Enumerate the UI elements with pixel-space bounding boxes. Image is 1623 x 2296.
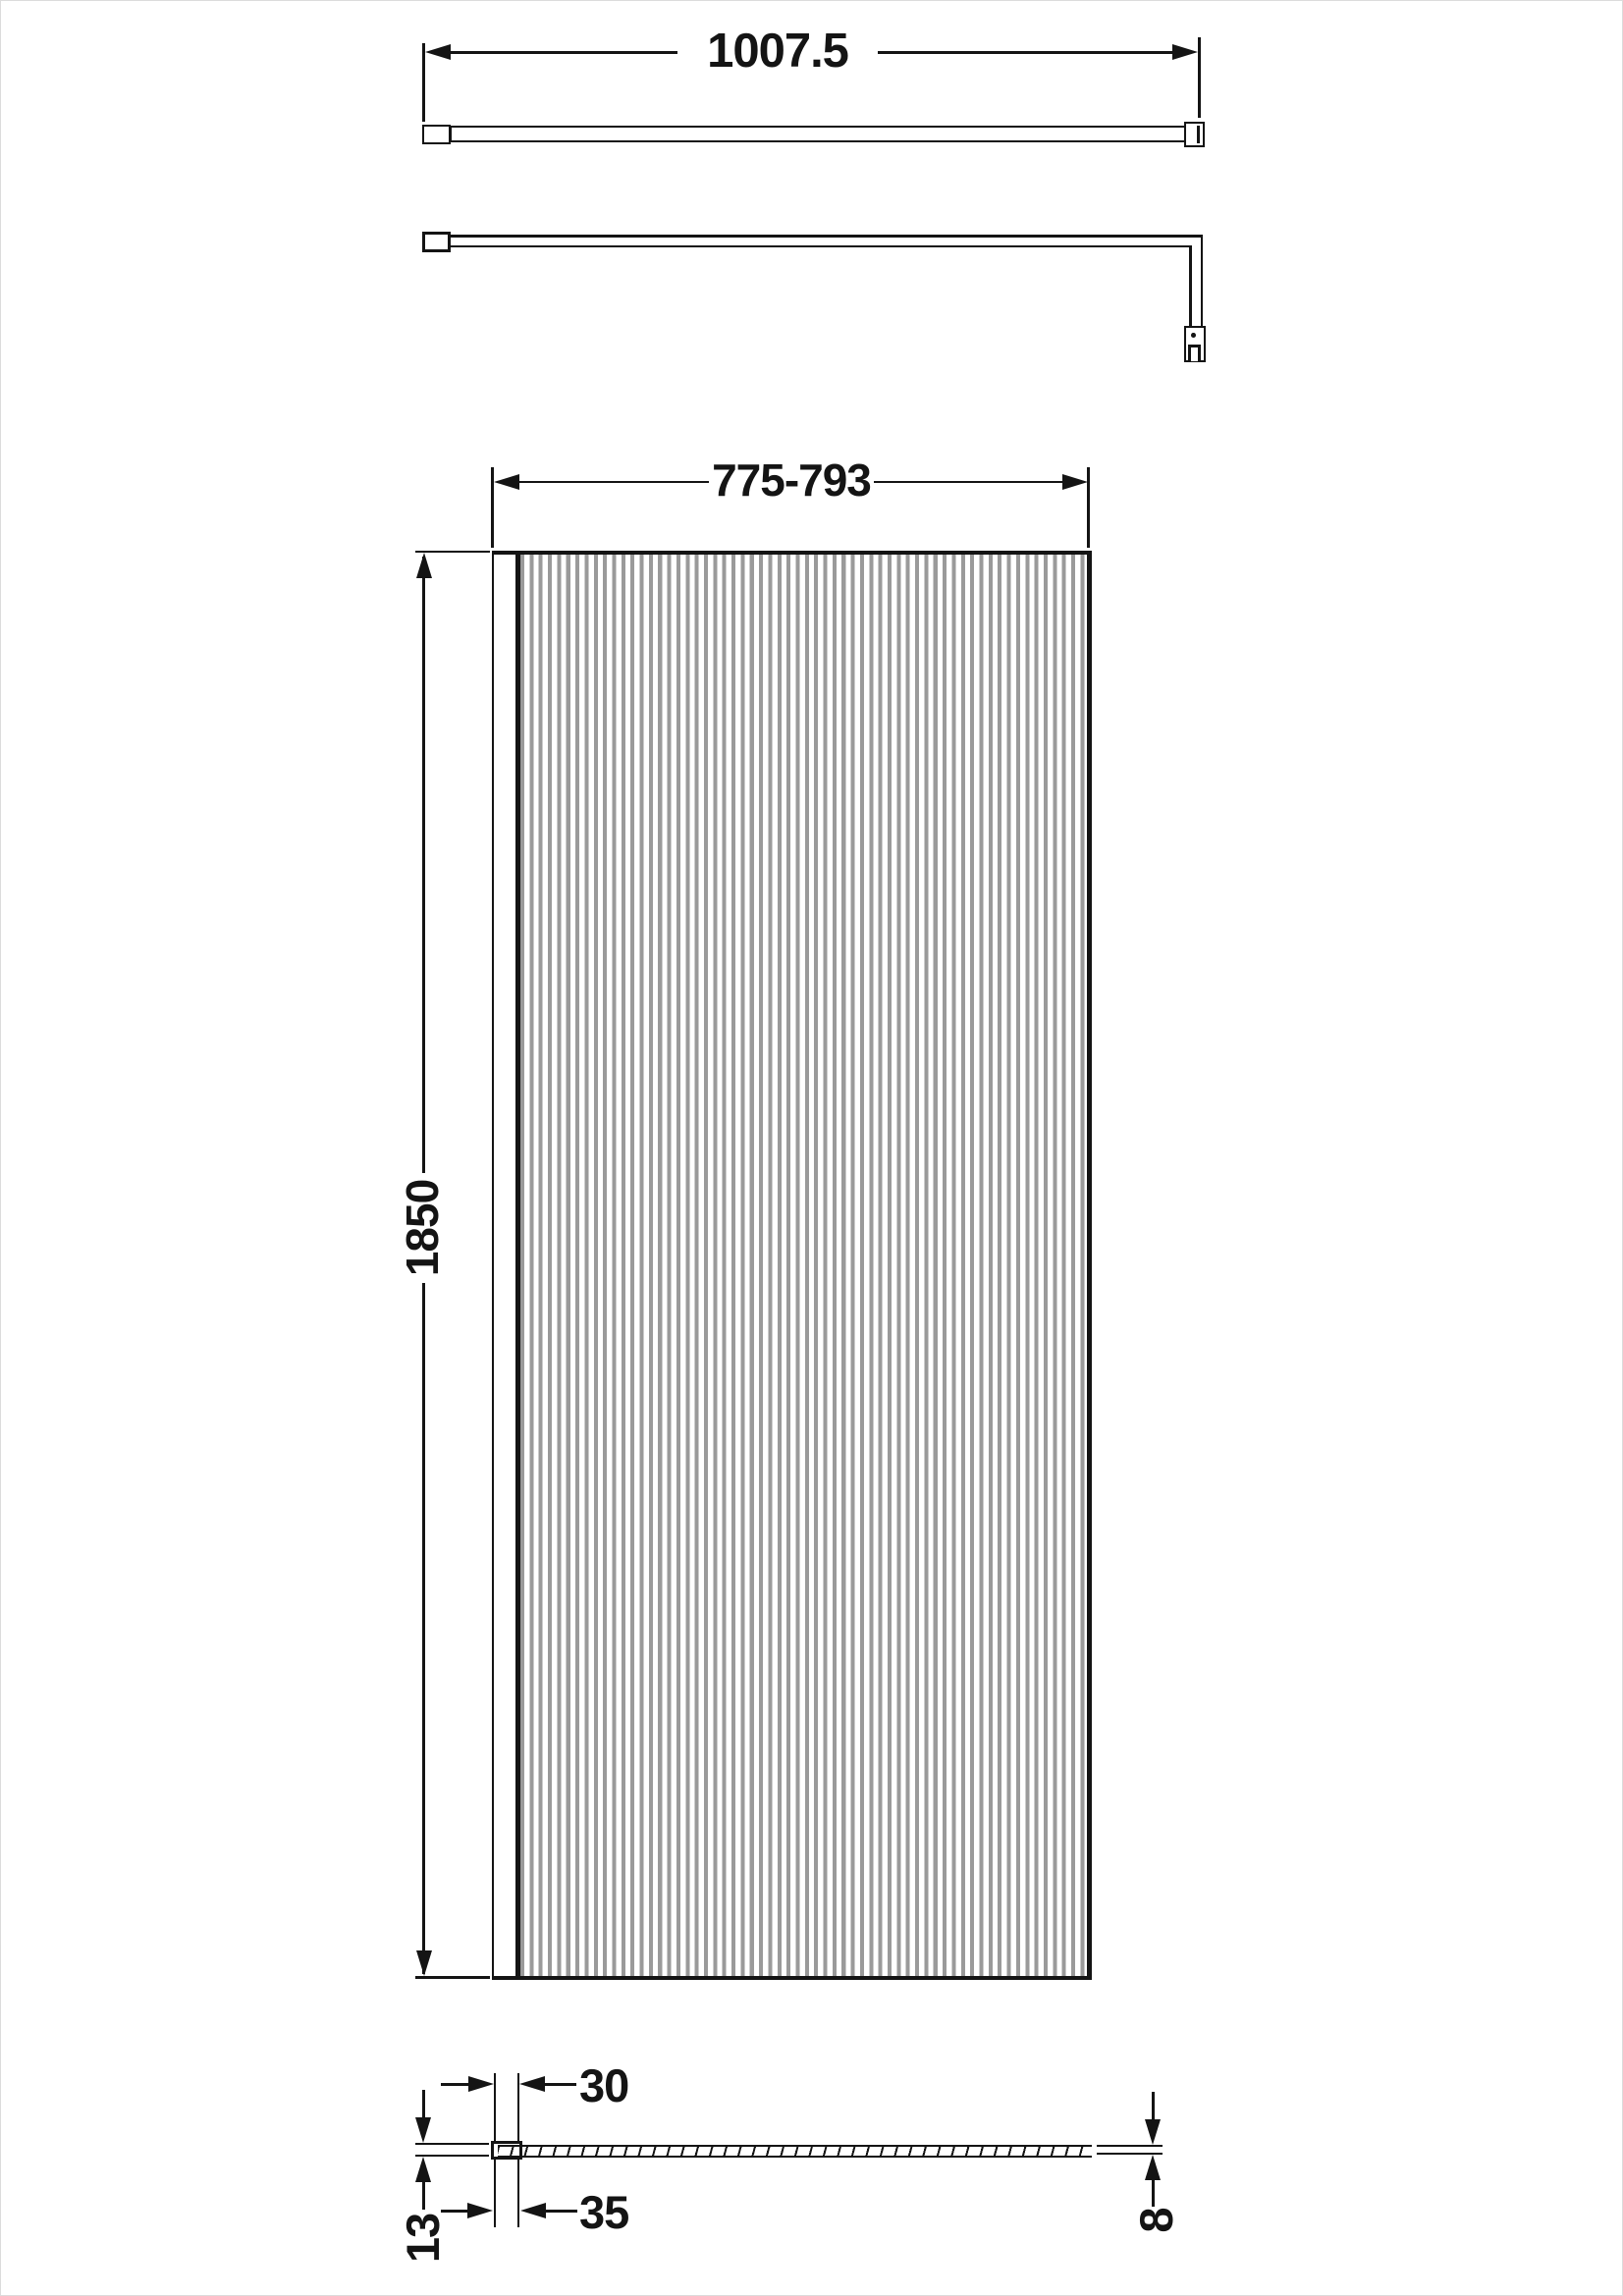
dimension-arrow-right-icon: [468, 2076, 494, 2092]
support-bar-length-label: 1007.5: [677, 27, 878, 77]
dimension-arrow-down-icon: [416, 1950, 432, 1976]
glass-panel: [492, 551, 1092, 1980]
dimension-arrow-up-icon: [1145, 2155, 1161, 2180]
clamp-prongs: [1188, 345, 1201, 362]
dimension-line: [874, 481, 1064, 484]
dimension-line: [878, 51, 1172, 54]
fluted-glass-texture: [520, 555, 1087, 1976]
dimension-line: [441, 2083, 469, 2086]
bar-bottom-edge: [451, 245, 1191, 248]
glass-clamp: [1184, 122, 1205, 147]
dimension-arrow-down-icon: [1145, 2119, 1161, 2145]
panel-height-label: 1850: [399, 1169, 448, 1287]
profile-depth-label: 13: [399, 2194, 446, 2282]
dimension-arrow-right-icon: [1172, 44, 1198, 60]
profile-inner-width-label: 30: [579, 2061, 628, 2109]
wall-bracket: [422, 125, 451, 144]
dimension-arrow-left-icon: [519, 2076, 545, 2092]
extension-line: [415, 2143, 489, 2145]
bar-top-edge: [451, 235, 1203, 238]
profile-outer-width-label: 35: [579, 2188, 628, 2236]
extension-line: [1198, 37, 1201, 118]
dimension-line: [422, 557, 425, 1173]
technical-drawing: 1007.5 775-793 1850: [0, 0, 1623, 2296]
clamp-screw-icon: [1191, 333, 1196, 338]
dimension-line: [1152, 2092, 1155, 2119]
bar-elbow-outer: [1201, 235, 1204, 327]
dimension-line: [516, 481, 709, 484]
dimension-line: [422, 1283, 425, 1974]
dimension-line: [545, 2083, 576, 2086]
wall-bracket: [422, 232, 451, 252]
dimension-arrow-left-icon: [425, 44, 451, 60]
dimension-arrow-up-icon: [415, 2157, 431, 2182]
glass-clamp: [1184, 326, 1206, 362]
dimension-line: [546, 2210, 577, 2213]
extension-line: [1097, 2145, 1163, 2147]
dimension-arrow-right-icon: [467, 2203, 493, 2218]
support-bar-tube: [450, 126, 1187, 142]
clamp-jaw: [1197, 126, 1200, 143]
glass-section-strip: [498, 2145, 1092, 2158]
dimension-arrow-left-icon: [494, 474, 519, 490]
bar-elbow-inner: [1189, 245, 1192, 328]
dimension-line: [422, 2090, 425, 2118]
panel-width-label: 775-793: [709, 456, 874, 504]
extension-line: [415, 1976, 490, 1979]
dimension-arrow-left-icon: [520, 2203, 546, 2218]
dimension-arrow-right-icon: [1062, 474, 1088, 490]
dimension-line: [449, 51, 677, 54]
dimension-arrow-down-icon: [415, 2117, 431, 2143]
glass-thickness-label: 8: [1132, 2191, 1179, 2250]
